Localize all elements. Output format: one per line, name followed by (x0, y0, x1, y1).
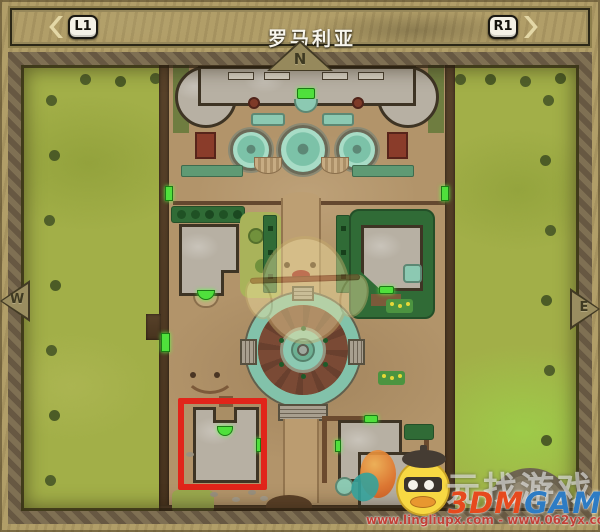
reflecting-pool (322, 113, 354, 126)
planter (248, 97, 260, 109)
door-marker (379, 286, 394, 294)
well (335, 477, 354, 496)
map-title: 罗马利亚 (162, 24, 462, 51)
flower-bed (195, 132, 216, 159)
tree-icon (46, 95, 57, 106)
town-wall-west (159, 62, 169, 516)
hedge-row (404, 424, 434, 440)
palace-room (322, 72, 348, 80)
game-map-screen: N W E L1 罗马利亚 R1 元找游戏 3DMGAME www.lingli… (0, 0, 600, 532)
rock-icon (210, 492, 218, 497)
map-layer (0, 0, 600, 532)
gate-marker (161, 333, 170, 352)
bush-icon (301, 326, 306, 331)
plaza-stairs-west (240, 339, 257, 365)
water-channel (181, 165, 243, 177)
post-icon (190, 372, 196, 378)
water-channel (352, 165, 414, 177)
tree-icon (543, 95, 554, 106)
corner-pond (403, 264, 422, 283)
l1-bumper-button[interactable]: L1 (68, 15, 98, 39)
gate-marker (441, 186, 449, 201)
terrace-edge (321, 201, 445, 205)
palace-room (228, 72, 254, 80)
next-map-arrow-icon[interactable] (524, 16, 539, 38)
tree-icon (80, 74, 91, 85)
flower-hedge (386, 299, 413, 313)
tree-icon (455, 74, 466, 85)
bush-icon (177, 210, 186, 219)
grass-patch (172, 490, 214, 514)
palace-room (264, 72, 290, 80)
door-marker (335, 440, 341, 452)
flower-bed (387, 132, 408, 159)
compass-east-label: E (574, 300, 594, 315)
fountain (278, 125, 328, 175)
reflecting-pool (251, 113, 285, 126)
hedge-column (336, 215, 350, 293)
garden-wall (322, 421, 327, 483)
plaza-stairs-east (348, 339, 365, 365)
fountain-core (297, 344, 309, 356)
prev-map-arrow-icon[interactable] (48, 16, 63, 38)
flower-hedge (378, 371, 405, 385)
quest-highlight-box (178, 398, 267, 490)
plaza-stairs-north (292, 286, 314, 301)
gate-marker (165, 186, 173, 201)
building-notch (221, 270, 239, 296)
main-path (283, 419, 319, 503)
bush-icon (268, 226, 273, 231)
flower-icon (390, 302, 394, 306)
tree-icon (248, 228, 264, 244)
terrace-edge (173, 201, 289, 205)
r1-bumper-button[interactable]: R1 (488, 15, 518, 39)
west-gate-structure (146, 314, 161, 340)
door-marker (297, 88, 315, 99)
town-wall-east (445, 62, 455, 516)
compass-west-label: W (7, 292, 27, 307)
building-join (362, 456, 398, 480)
planter (352, 97, 364, 109)
compass-north-label: N (288, 50, 312, 68)
palace-room (358, 72, 384, 80)
door-marker (364, 415, 378, 423)
flower-icon (382, 374, 386, 378)
